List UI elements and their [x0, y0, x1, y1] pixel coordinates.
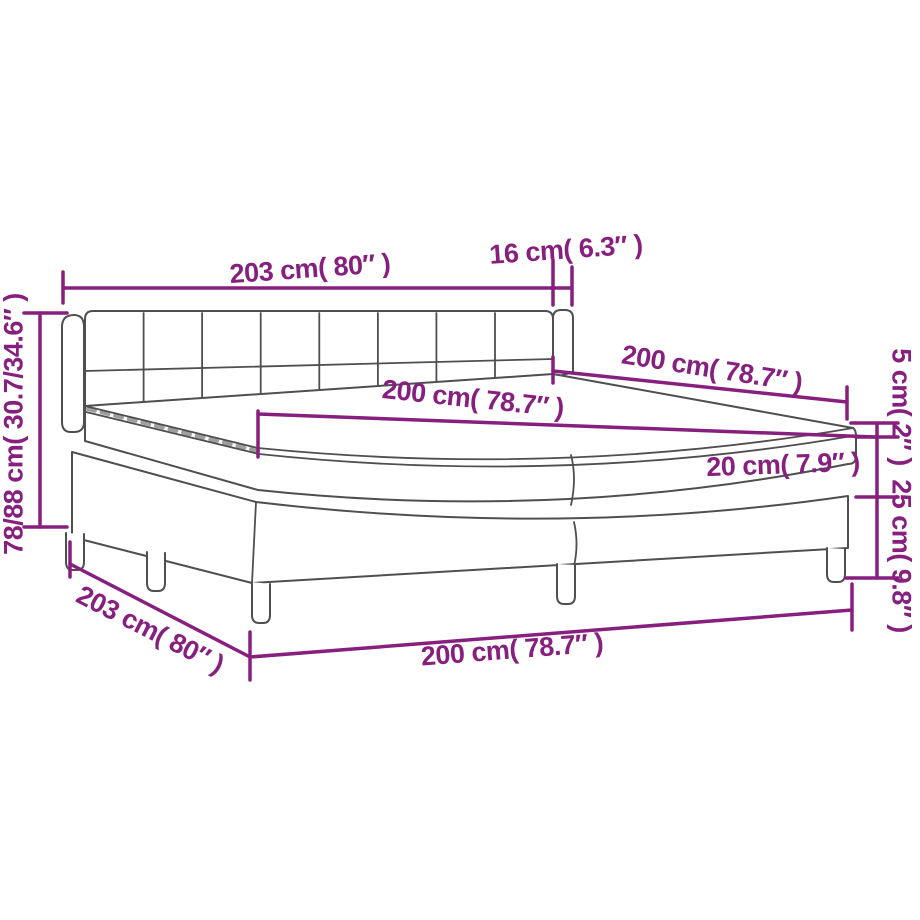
bed-leg [147, 552, 165, 591]
diagram-canvas: 203 cm( 80″ ) 16 cm( 6.3″ ) 200 cm( 78.7… [0, 0, 920, 920]
bed-leg [557, 564, 575, 604]
bed-leg [827, 548, 845, 582]
dim-base-height-label: 25 cm( 9.8″ ) [888, 479, 915, 633]
headboard-right-wing [553, 310, 573, 378]
dim-headboard-height-label: 78/88 cm( 30.7/34.6″ ) [1, 293, 28, 555]
dim-topper-thickness-label: 5 cm( 2″ ) [888, 348, 915, 465]
headboard-left-wing [62, 315, 84, 432]
dim-mattress-thickness-label: 20 cm( 7.9″ ) [706, 449, 860, 481]
dim-headboard-height-line [24, 313, 67, 527]
bed-leg [252, 582, 270, 623]
